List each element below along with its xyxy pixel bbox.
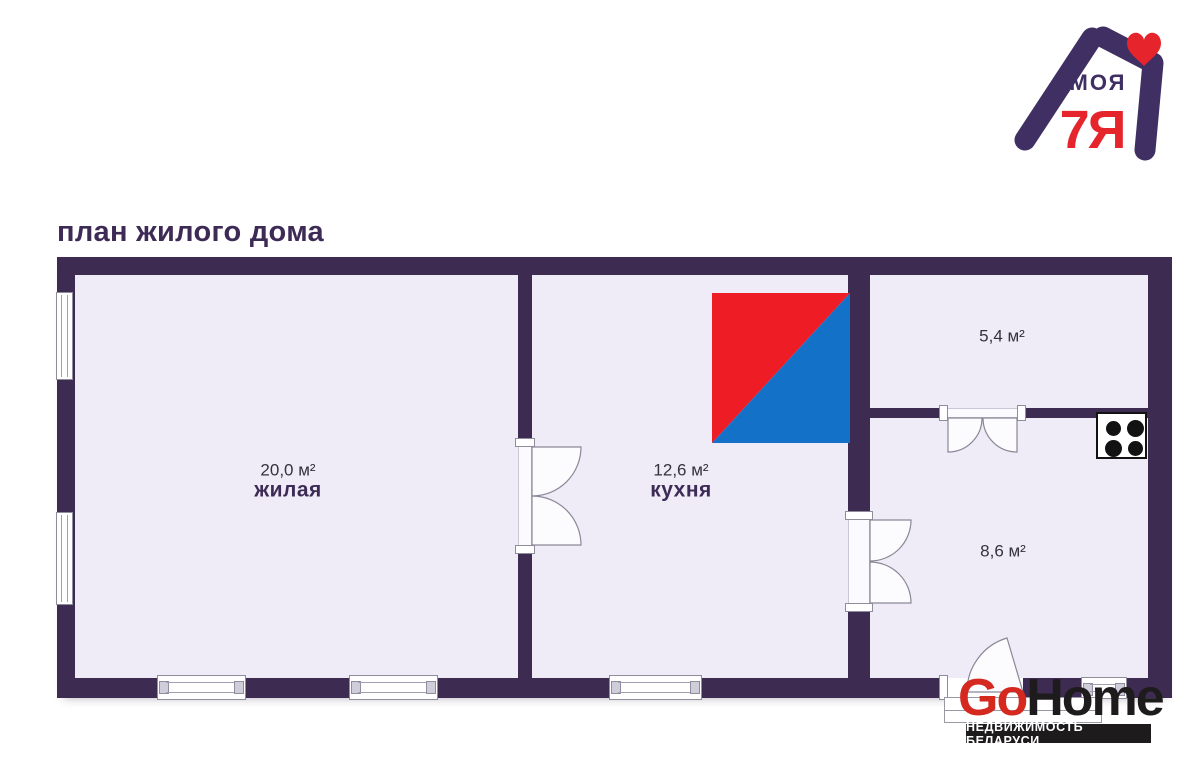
page-title: план жилого дома [57, 216, 324, 248]
double-door-living-kitchen-icon [532, 447, 581, 545]
room-86-label: 8,6 м² [980, 542, 1026, 561]
gohome-go-text: Go [958, 669, 1026, 727]
burner-icon [1106, 421, 1121, 436]
living-room-area: 20,0 м² [254, 461, 322, 480]
gohome-tagline-bar: НЕДВИЖИМОСТЬ БЕЛАРУСИ [966, 724, 1151, 743]
double-door-kitchen-hall-icon [870, 520, 911, 603]
brand-text-moya: МОЯ [1070, 70, 1127, 95]
kitchen-label: 12,6 м² кухня [650, 461, 712, 502]
floor-plan: 20,0 м² жилая 12,6 м² кухня 5,4 м² 8,6 м… [57, 257, 1172, 698]
gohome-wordmark: GoHome [958, 672, 1163, 724]
living-room-name: жилая [254, 480, 322, 502]
brand-logo: МОЯ 7Я [1008, 12, 1188, 172]
room-54-label: 5,4 м² [979, 327, 1025, 346]
brand-text-7ya: 7Я [1060, 100, 1125, 160]
stove-icon [1096, 412, 1147, 459]
room-54-area: 5,4 м² [979, 327, 1025, 346]
burner-icon [1127, 420, 1144, 437]
burner-icon [1105, 440, 1122, 457]
room-86-area: 8,6 м² [980, 542, 1026, 561]
kitchen-area: 12,6 м² [650, 461, 712, 480]
gohome-watermark: GoHome [958, 672, 1163, 724]
living-room-label: 20,0 м² жилая [254, 461, 322, 502]
double-door-room54-room86-icon [948, 418, 1017, 452]
marker-square [712, 293, 850, 443]
gohome-home-text: Home [1026, 669, 1162, 727]
plan-symbols [57, 257, 1172, 698]
kitchen-name: кухня [650, 480, 712, 502]
page: МОЯ 7Я план жилого дома [0, 0, 1200, 768]
burner-icon [1128, 441, 1143, 456]
